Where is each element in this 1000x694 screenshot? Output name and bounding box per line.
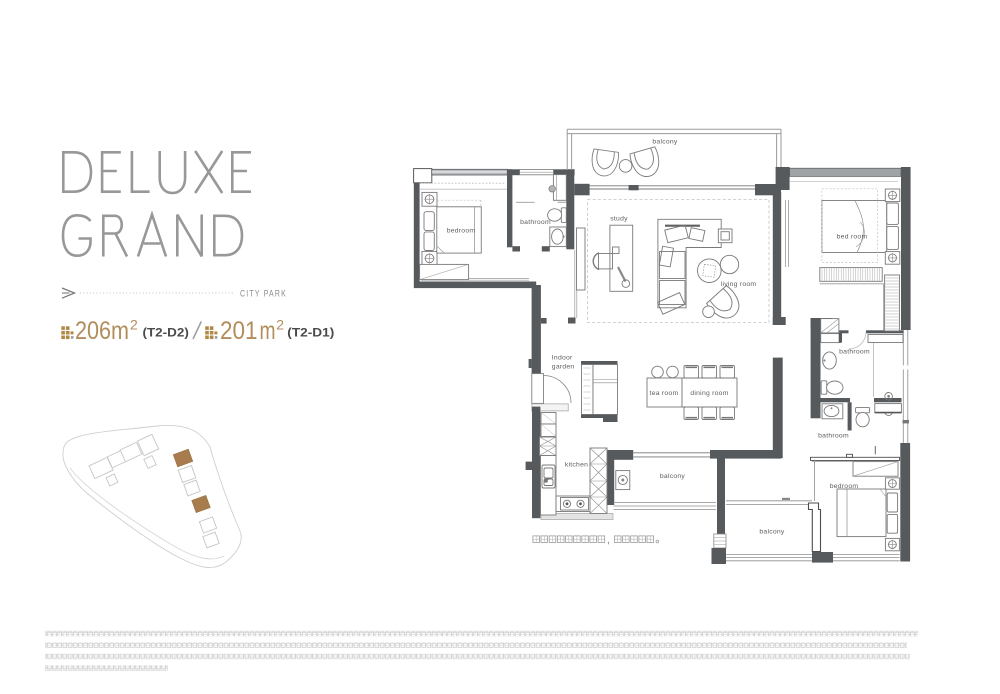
svg-text:CITY PARK: CITY PARK <box>240 289 287 299</box>
svg-text:206m: 206m <box>75 317 129 345</box>
svg-text:balcony: balcony <box>660 473 686 480</box>
svg-text:kitchen: kitchen <box>565 462 588 469</box>
svg-text:living room: living room <box>721 281 757 288</box>
svg-text:bathroom: bathroom <box>839 349 870 356</box>
svg-text:bedroom: bedroom <box>830 483 859 490</box>
svg-text:balcony: balcony <box>759 529 785 536</box>
svg-text:dining room: dining room <box>690 390 728 397</box>
svg-text:balcony: balcony <box>652 139 678 146</box>
svg-text:(T2-D2): (T2-D2) <box>143 326 189 340</box>
svg-text:m: m <box>260 317 276 345</box>
svg-text:bathroom: bathroom <box>818 433 849 440</box>
svg-text:study: study <box>610 215 628 222</box>
svg-text:2: 2 <box>130 317 138 333</box>
svg-text:Indoor: Indoor <box>552 355 573 362</box>
svg-text:garden: garden <box>552 364 575 371</box>
svg-text:bathroom: bathroom <box>520 219 551 226</box>
svg-text:tea room: tea room <box>650 390 679 397</box>
svg-text:(T2-D1): (T2-D1) <box>287 326 334 340</box>
svg-text:bed room: bed room <box>837 234 868 241</box>
svg-text:2: 2 <box>276 317 284 333</box>
svg-text:bedroom: bedroom <box>447 228 476 235</box>
svg-text:201: 201 <box>220 317 258 345</box>
